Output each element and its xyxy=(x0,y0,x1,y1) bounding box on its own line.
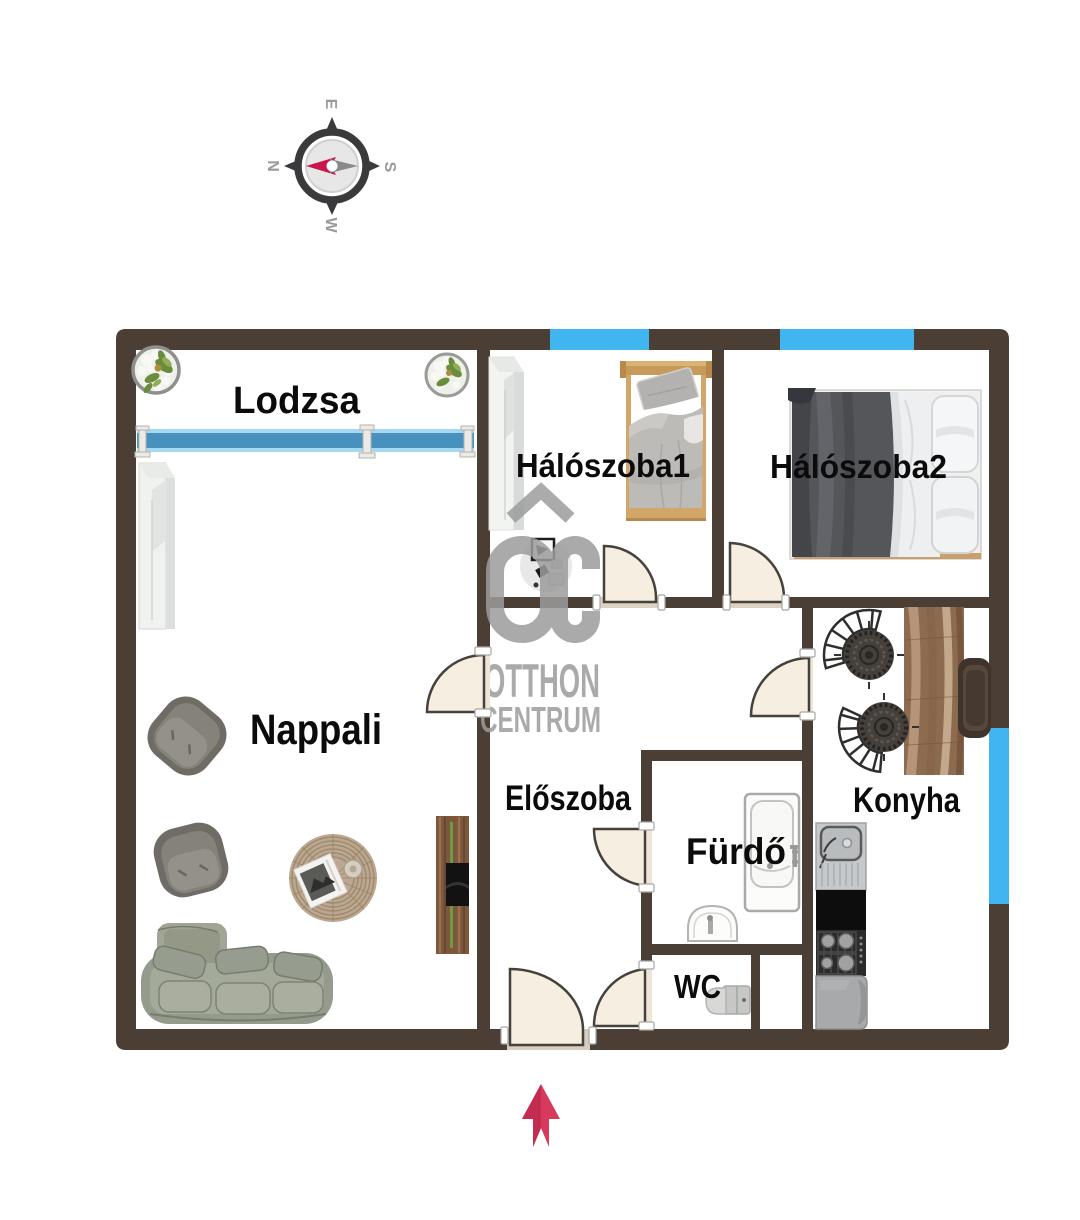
svg-text:Előszoba: Előszoba xyxy=(505,779,631,818)
svg-text:CENTRUM: CENTRUM xyxy=(480,699,601,740)
svg-text:Lodzsa: Lodzsa xyxy=(233,380,361,422)
svg-text:WC: WC xyxy=(674,968,721,1005)
svg-text:N: N xyxy=(264,160,281,172)
svg-text:S: S xyxy=(381,162,398,173)
svg-text:Nappali: Nappali xyxy=(250,706,382,754)
svg-text:E: E xyxy=(322,99,339,110)
svg-text:Hálószoba1: Hálószoba1 xyxy=(516,447,690,484)
svg-text:W: W xyxy=(322,217,339,233)
svg-text:Hálószoba2: Hálószoba2 xyxy=(770,448,947,485)
svg-text:Fürdő: Fürdő xyxy=(686,831,786,872)
svg-text:Konyha: Konyha xyxy=(853,781,960,820)
